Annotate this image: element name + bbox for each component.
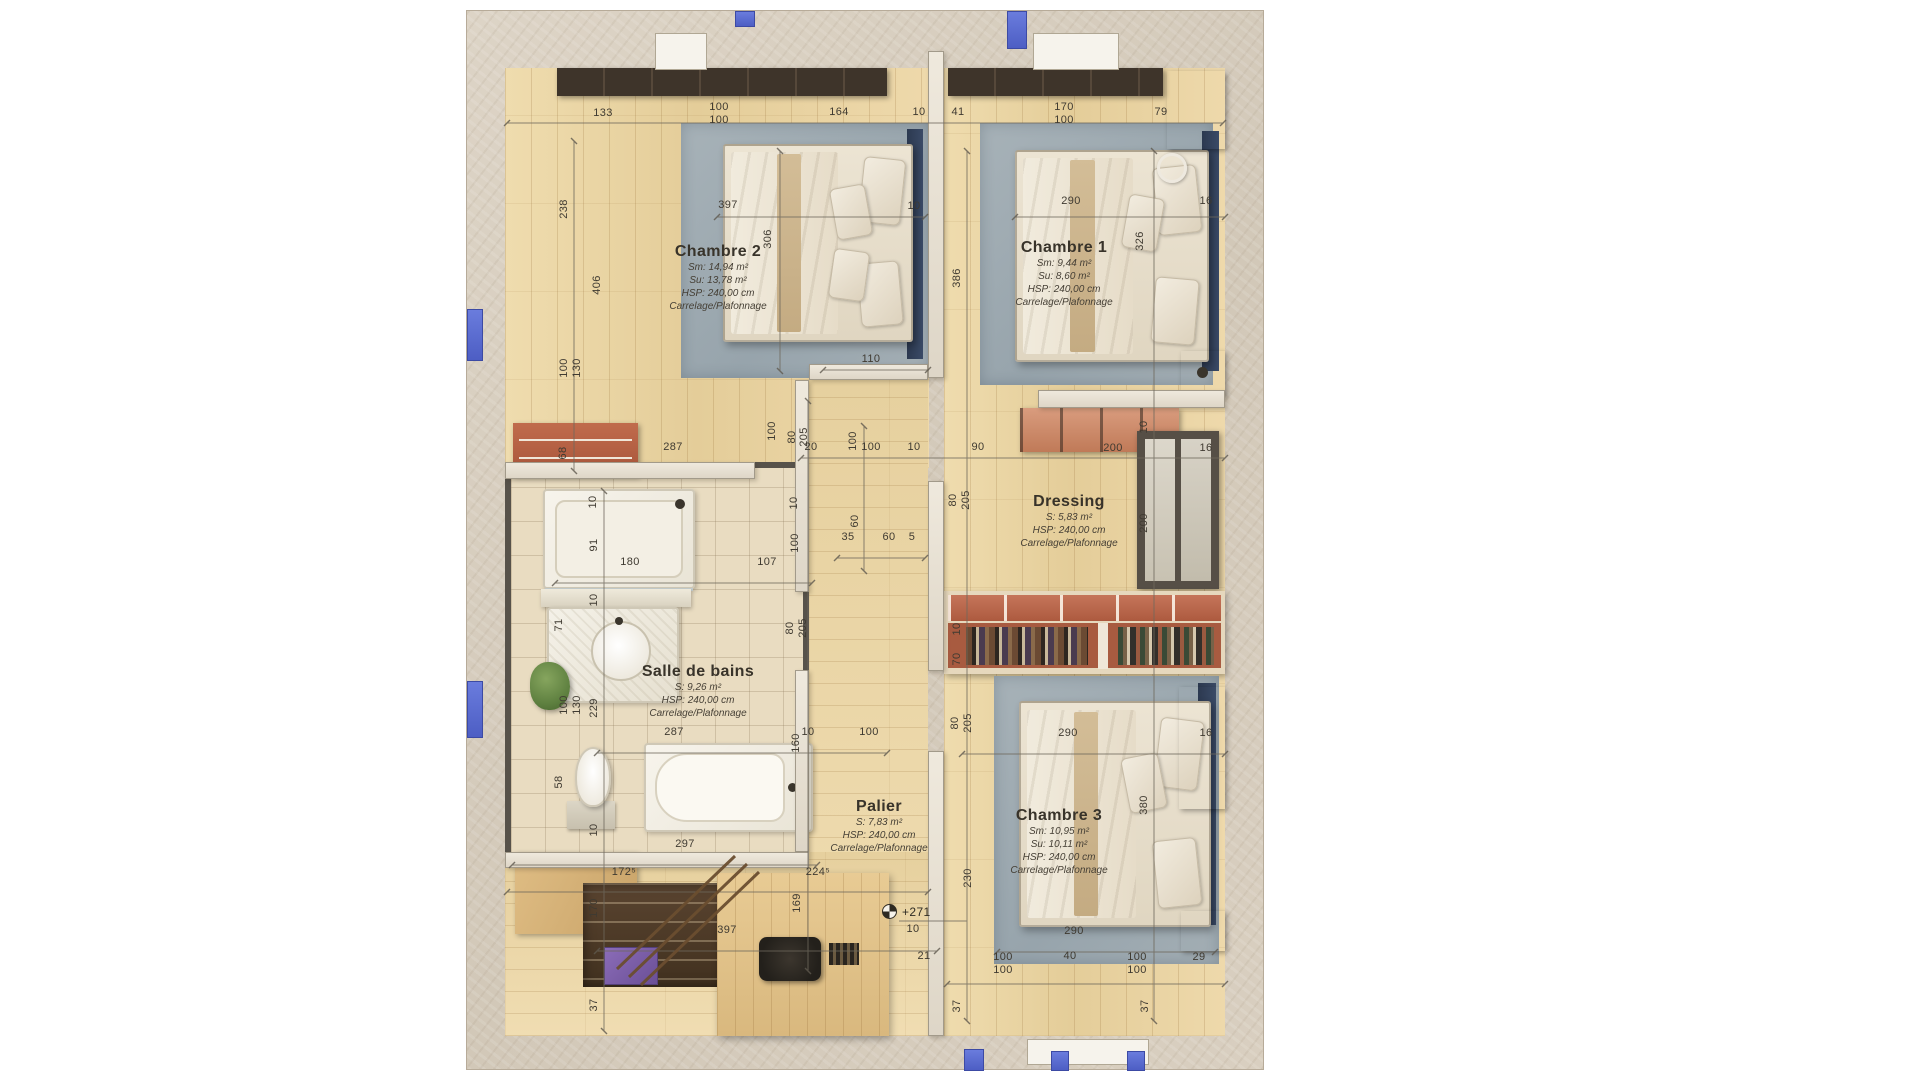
dimension-label: 326: [1134, 231, 1146, 251]
dimension-label: 306: [762, 229, 774, 249]
dimension-label: 100: [1127, 951, 1147, 963]
dimension-label: 170: [1054, 101, 1074, 113]
room-title: Chambre 2: [608, 243, 828, 261]
dimension-label: 10: [906, 923, 919, 935]
dimension-label: 37: [951, 999, 963, 1012]
dimension-label: 10: [588, 593, 600, 606]
dimension-label: 29: [1192, 951, 1205, 963]
dimension-label: 58: [553, 775, 565, 788]
dimension-label: 172⁵: [612, 866, 637, 878]
room-stat: Carrelage/Plafonnage: [959, 537, 1179, 550]
room-title: Chambre 3: [949, 807, 1169, 825]
dimension-label: 397: [717, 924, 737, 936]
dimension-label: 91: [588, 538, 600, 551]
dimension-label: 290: [1058, 727, 1078, 739]
dimension-label: 287: [663, 441, 683, 453]
dimension-label: 80: [786, 430, 798, 443]
dimension-label: 16: [1199, 442, 1212, 454]
room-stat: Sm: 14,94 m²: [608, 261, 828, 274]
window-symbol: [1127, 1051, 1145, 1071]
dimension-label: 60: [882, 531, 895, 543]
dimension-label: 100: [1127, 964, 1147, 976]
dimension-label: 10: [912, 106, 925, 118]
dimension-label: 37: [588, 998, 600, 1011]
dimension-label: 60: [849, 514, 861, 527]
dimension-label: 80: [949, 716, 961, 729]
dimension-label: 40: [1063, 950, 1076, 962]
window-symbol: [735, 11, 755, 27]
dimension-label: 297: [675, 838, 695, 850]
dimension-label: 100: [709, 101, 729, 113]
dimension-label: 130: [571, 358, 583, 378]
dimension-label: 205: [962, 713, 974, 733]
room-label-salle-de-bains: Salle de bains S: 9,26 m² HSP: 240,00 cm…: [588, 663, 808, 720]
room-title: Dressing: [959, 493, 1179, 511]
dimension-label: 170: [588, 898, 600, 918]
dimension-label: 290: [1064, 925, 1084, 937]
dimension-label: 230: [962, 868, 974, 888]
dimension-label: 68: [557, 446, 569, 459]
floor-plan: Chambre 2 Sm: 14,94 m² Su: 13,78 m² HSP:…: [466, 10, 1264, 1070]
dimension-label: 397: [718, 199, 738, 211]
dimension-label: 10: [1138, 420, 1150, 433]
dimension-label: 100: [859, 726, 879, 738]
screenshot: Chambre 2 Sm: 14,94 m² Su: 13,78 m² HSP:…: [0, 0, 1920, 1080]
dimension-label: 100: [789, 533, 801, 553]
dimension-label: 10: [587, 495, 599, 508]
room-label-chambre2: Chambre 2 Sm: 14,94 m² Su: 13,78 m² HSP:…: [608, 243, 828, 313]
dimension-label: 100: [766, 421, 778, 441]
dimension-label: 100: [558, 358, 570, 378]
dimension-label: 100: [861, 441, 881, 453]
room-stat: Sm: 10,95 m²: [949, 825, 1169, 838]
room-title: Salle de bains: [588, 663, 808, 681]
dimension-label: 100: [847, 431, 859, 451]
dimension-label: 10: [801, 726, 814, 738]
level-marker: +271: [882, 904, 931, 919]
dimension-label: 133: [593, 107, 613, 119]
dimension-label: 10: [907, 441, 920, 453]
dimension-label: 90: [971, 441, 984, 453]
dimension-label: 5: [909, 531, 916, 543]
dimension-label: 37: [1139, 999, 1151, 1012]
dimension-label: 386: [951, 268, 963, 288]
window-symbol: [1051, 1051, 1069, 1071]
dimension-label: 41: [951, 106, 964, 118]
level-marker-icon: [882, 904, 897, 919]
dimension-label: 169: [791, 893, 803, 913]
room-stat: HSP: 240,00 cm: [608, 287, 828, 300]
window-symbol: [467, 309, 483, 361]
dimension-label: 10: [588, 823, 600, 836]
room-stat: HSP: 240,00 cm: [588, 694, 808, 707]
window-symbol: [1007, 11, 1027, 49]
dimension-label: 16: [1199, 195, 1212, 207]
dimension-label: 79: [1154, 106, 1167, 118]
dimension-label: 200: [1138, 513, 1150, 533]
room-stat: Carrelage/Plafonnage: [608, 300, 828, 313]
dimension-label: 380: [1138, 795, 1150, 815]
window-symbol: [467, 681, 483, 738]
dimension-label: 238: [558, 199, 570, 219]
dimension-label: 224⁵: [806, 866, 831, 878]
dimension-label: 10: [907, 200, 920, 212]
dimension-label: 10: [788, 496, 800, 509]
dimension-label: 71: [553, 618, 565, 631]
level-marker-value: +271: [902, 905, 931, 919]
dimension-label: 107: [757, 556, 777, 568]
room-stat: Carrelage/Plafonnage: [954, 296, 1174, 309]
room-stat: Carrelage/Plafonnage: [949, 864, 1169, 877]
window-symbol: [964, 1049, 984, 1071]
dimension-label: 80: [784, 621, 796, 634]
dimension-label: 100: [709, 114, 729, 126]
room-stat: HSP: 240,00 cm: [949, 851, 1169, 864]
dimension-label: 406: [591, 275, 603, 295]
room-stat: Su: 8,60 m²: [954, 270, 1174, 283]
dimension-label: 21: [917, 950, 930, 962]
dimension-label: 100: [993, 951, 1013, 963]
dimension-label: 229: [588, 698, 600, 718]
room-stat: Su: 13,78 m²: [608, 274, 828, 287]
dimension-label: 110: [862, 353, 881, 365]
dimension-label: 70: [951, 652, 963, 665]
room-label-chambre3: Chambre 3 Sm: 10,95 m² Su: 10,11 m² HSP:…: [949, 807, 1169, 877]
dimension-label: 130: [571, 695, 583, 715]
dimension-label: 100: [1054, 114, 1074, 126]
dimension-label: 205: [798, 427, 810, 447]
dimension-label: 205: [797, 618, 809, 638]
dimension-label: 164: [829, 106, 849, 118]
dimension-label: 35: [841, 531, 854, 543]
dimension-label: 290: [1061, 195, 1081, 207]
room-stat: Su: 10,11 m²: [949, 838, 1169, 851]
dimension-label: 16: [1199, 727, 1212, 739]
dimension-label: 200: [1103, 442, 1123, 454]
room-stat: Carrelage/Plafonnage: [588, 707, 808, 720]
room-stat: S: 9,26 m²: [588, 681, 808, 694]
dimension-label: 180: [620, 556, 640, 568]
room-stat: Sm: 9,44 m²: [954, 257, 1174, 270]
dimension-label: 205: [960, 490, 972, 510]
dimension-label: 160: [790, 733, 802, 753]
room-stat: HSP: 240,00 cm: [954, 283, 1174, 296]
dimension-label: 287: [664, 726, 684, 738]
dimension-label: 80: [947, 493, 959, 506]
dimension-label: 100: [558, 695, 570, 715]
dimension-label: 100: [993, 964, 1013, 976]
dimension-label: 10: [951, 622, 963, 635]
